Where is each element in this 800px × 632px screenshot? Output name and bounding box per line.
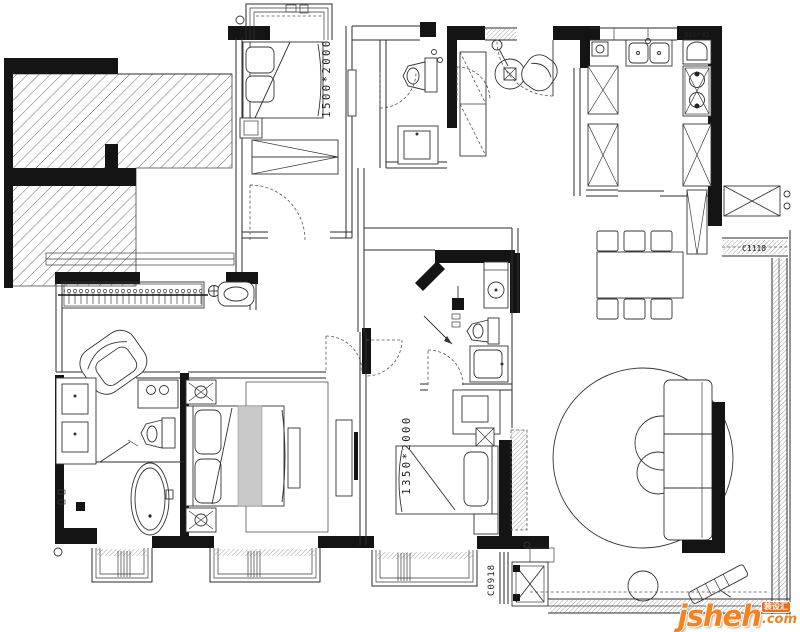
shower-fixture xyxy=(452,286,464,327)
kitchen-sink xyxy=(626,39,672,67)
double-vanity xyxy=(56,378,96,464)
dining-chair xyxy=(624,231,645,251)
bay-window-a xyxy=(92,548,152,582)
dining-area xyxy=(597,231,683,319)
window-code-bottom-label: C0918 xyxy=(487,564,497,596)
study xyxy=(457,28,562,156)
tv-bedroom2 xyxy=(348,70,356,116)
dining-chair xyxy=(651,231,672,251)
master-bedroom xyxy=(186,336,362,532)
kitchen-dim-label: 600*45 xyxy=(684,31,709,39)
door-arc-bedroom3 xyxy=(366,340,402,376)
lounge-chair-study xyxy=(517,50,563,96)
bay-window-b xyxy=(210,548,320,582)
nightstand xyxy=(186,508,216,532)
dressing-table xyxy=(138,380,178,408)
dining-chair xyxy=(597,231,618,251)
stool xyxy=(474,514,498,534)
kitchen: 600*45 xyxy=(588,28,711,254)
toilet xyxy=(141,418,175,448)
king-bed xyxy=(186,406,285,506)
bathroom-3 xyxy=(424,262,508,385)
bathroom-2 xyxy=(380,50,443,165)
foyer-cabinet xyxy=(511,430,527,530)
dining-chair xyxy=(624,299,645,319)
double-bed xyxy=(243,42,323,118)
bay-window-c xyxy=(372,550,477,586)
dining-chair xyxy=(651,299,672,319)
wardrobe-dresser xyxy=(252,140,338,174)
bathtub xyxy=(131,463,173,535)
sofa-back-panel-bottom xyxy=(682,540,725,553)
nightstand xyxy=(186,380,216,404)
dining-chair xyxy=(597,299,618,319)
ac-unit xyxy=(724,186,790,216)
laundry-basin xyxy=(683,40,711,64)
vanity-sink xyxy=(398,126,438,164)
bed-size-label: 1500*2000 xyxy=(321,38,333,117)
toilet xyxy=(467,318,499,344)
desk-chair xyxy=(476,428,494,446)
shower-door xyxy=(424,316,452,344)
study-window xyxy=(485,28,517,40)
floor-drain xyxy=(76,502,85,511)
window-c1118: C1118 xyxy=(722,238,788,256)
wardrobe-rail xyxy=(58,282,208,308)
nightstand xyxy=(240,118,262,138)
small-appliance xyxy=(592,42,608,56)
bed-size-label: 1350*2000 xyxy=(401,415,413,494)
watermark-brand: jsheh xyxy=(678,599,761,632)
window-code-right-label: C1118 xyxy=(742,244,766,253)
watermark-suffix: .com xyxy=(762,613,797,626)
elevator-shaft: C0918 xyxy=(487,542,554,606)
watermark-badge: 装设汇 xyxy=(762,602,790,612)
living-room xyxy=(530,368,768,614)
bed-bench xyxy=(288,428,300,488)
toilet xyxy=(403,50,443,93)
shelf-sink xyxy=(484,262,508,308)
sofa-back-panel xyxy=(712,402,725,548)
void-hatch-area xyxy=(4,58,232,288)
bench-seat xyxy=(218,282,254,306)
door-arc-master xyxy=(326,336,362,372)
sofa xyxy=(664,380,712,540)
watermark-logo: jsheh装设汇.com xyxy=(678,602,797,631)
desk xyxy=(453,390,500,434)
dining-table xyxy=(597,252,683,298)
cooktop xyxy=(683,66,711,116)
floor-lamp xyxy=(492,40,508,66)
tv-console xyxy=(336,420,358,496)
vanity xyxy=(470,346,508,382)
floor-plan-page: 1500*2000 xyxy=(0,0,800,632)
bed-runner xyxy=(238,406,262,506)
door-arc-bath3 xyxy=(428,350,463,385)
side-table xyxy=(495,59,525,89)
floor-plan-canvas: 1500*2000 xyxy=(0,0,800,632)
plant-pot xyxy=(628,571,658,601)
